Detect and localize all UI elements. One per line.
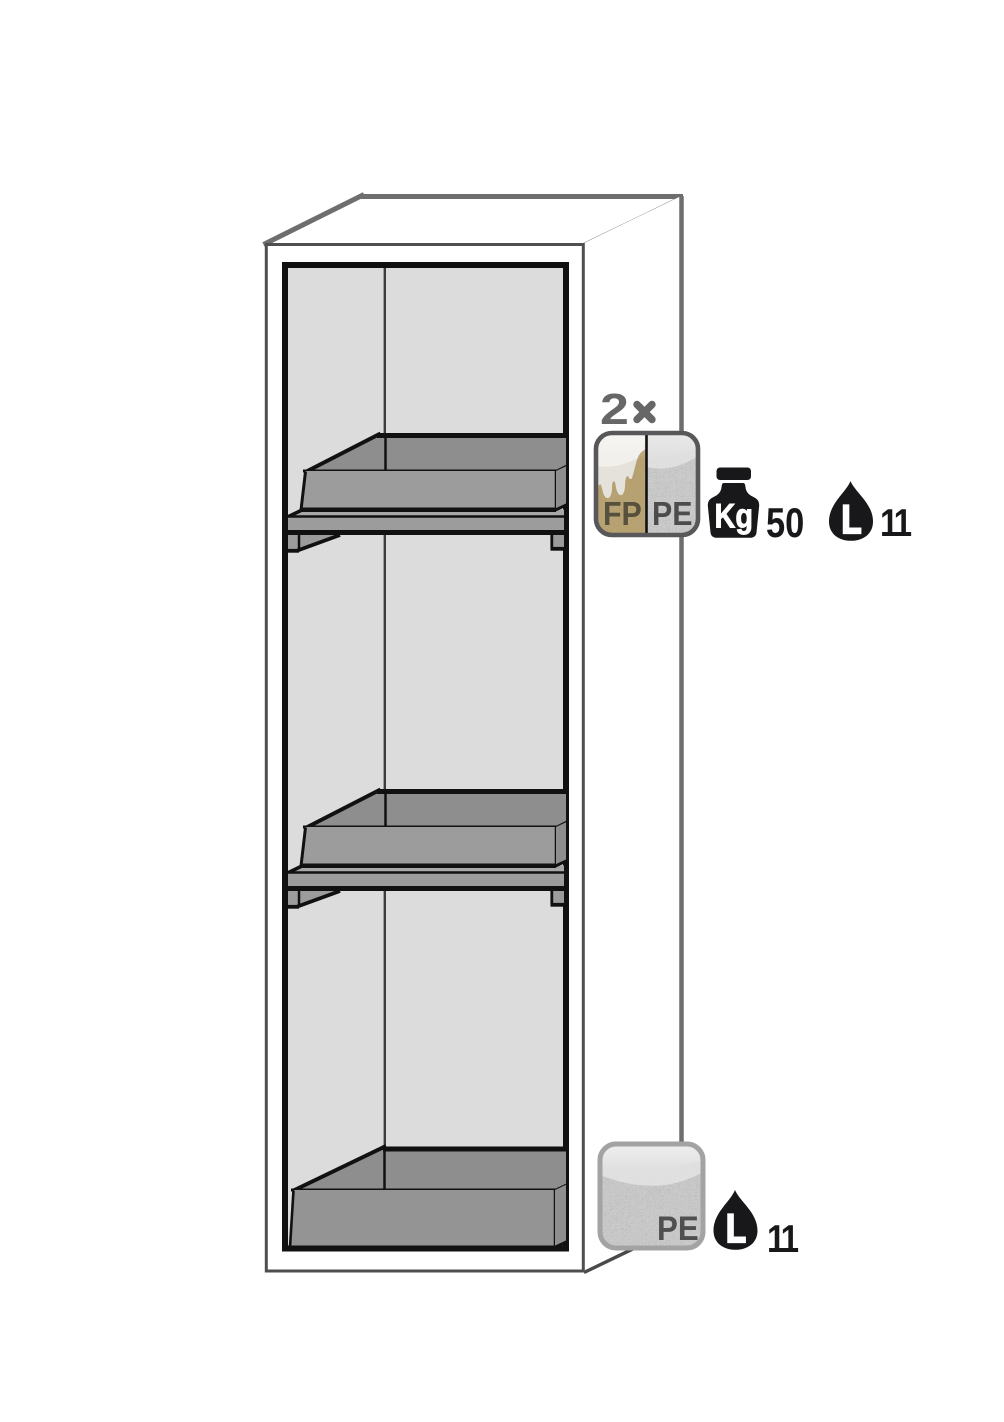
svg-text:50: 50 <box>766 500 804 547</box>
svg-text:PE: PE <box>652 495 692 532</box>
svg-text:PE: PE <box>657 1209 699 1248</box>
svg-text:11: 11 <box>880 500 912 544</box>
svg-text:2: 2 <box>600 385 629 434</box>
svg-text:FP: FP <box>603 495 642 532</box>
svg-text:11: 11 <box>767 1216 799 1260</box>
svg-text:Kg: Kg <box>715 496 754 535</box>
